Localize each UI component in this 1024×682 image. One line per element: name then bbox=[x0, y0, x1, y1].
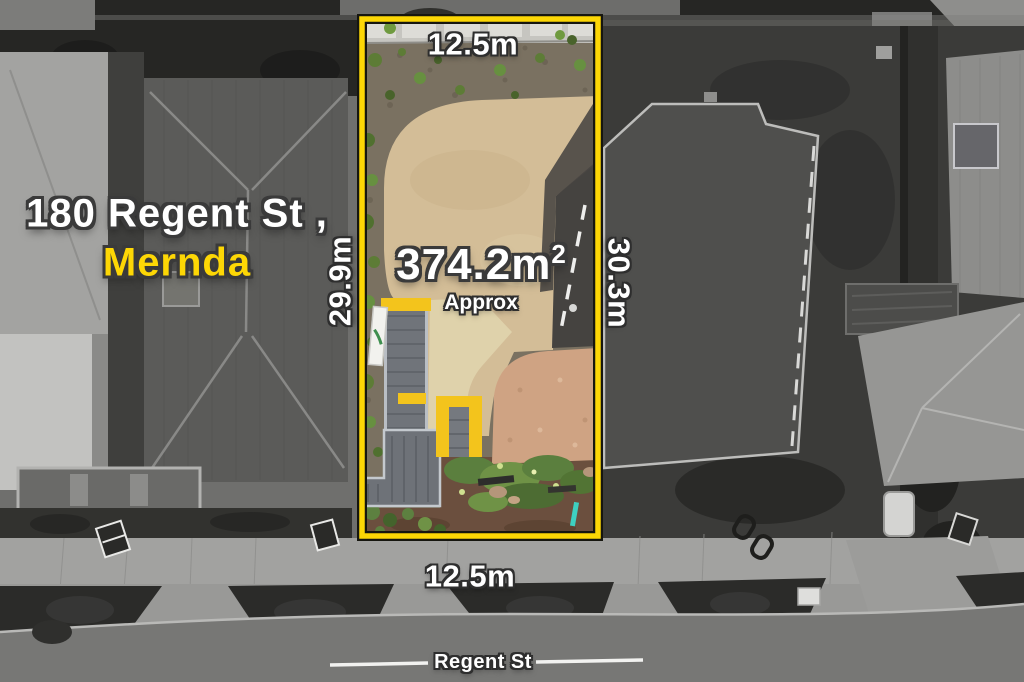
neighbor-roof-ne bbox=[946, 50, 1024, 298]
garden-rock bbox=[489, 486, 507, 498]
address-line: 180 Regent St , bbox=[26, 194, 328, 234]
neighbor-yard-right bbox=[602, 20, 1024, 569]
dim-top-label: 12.5m bbox=[428, 29, 518, 60]
suburb-line: Mernda bbox=[26, 243, 328, 283]
dim-left-label: 29.9m bbox=[325, 236, 356, 326]
property-title: 180 Regent St , Mernda bbox=[26, 194, 328, 283]
neighbor-house-left bbox=[0, 52, 352, 544]
rooftop-unit bbox=[954, 124, 998, 168]
dim-right-label: 30.3m bbox=[604, 238, 635, 328]
street-name-label: Regent St bbox=[434, 652, 532, 672]
lot-area: 374.2m2 Approx bbox=[396, 243, 566, 313]
listing-aerial-image: 180 Regent St , Mernda 12.5m 12.5m 29.9m… bbox=[0, 0, 1024, 682]
area-label: 374.2m bbox=[396, 240, 551, 289]
area-qualifier: Approx bbox=[396, 292, 566, 313]
parked-car bbox=[884, 492, 914, 536]
road-centerline-left bbox=[330, 663, 428, 665]
road-centerline-right bbox=[536, 660, 643, 662]
dim-bottom-label: 12.5m bbox=[425, 561, 515, 592]
patio bbox=[18, 468, 200, 512]
area-superscript: 2 bbox=[551, 239, 565, 269]
utility-pit bbox=[798, 588, 820, 605]
